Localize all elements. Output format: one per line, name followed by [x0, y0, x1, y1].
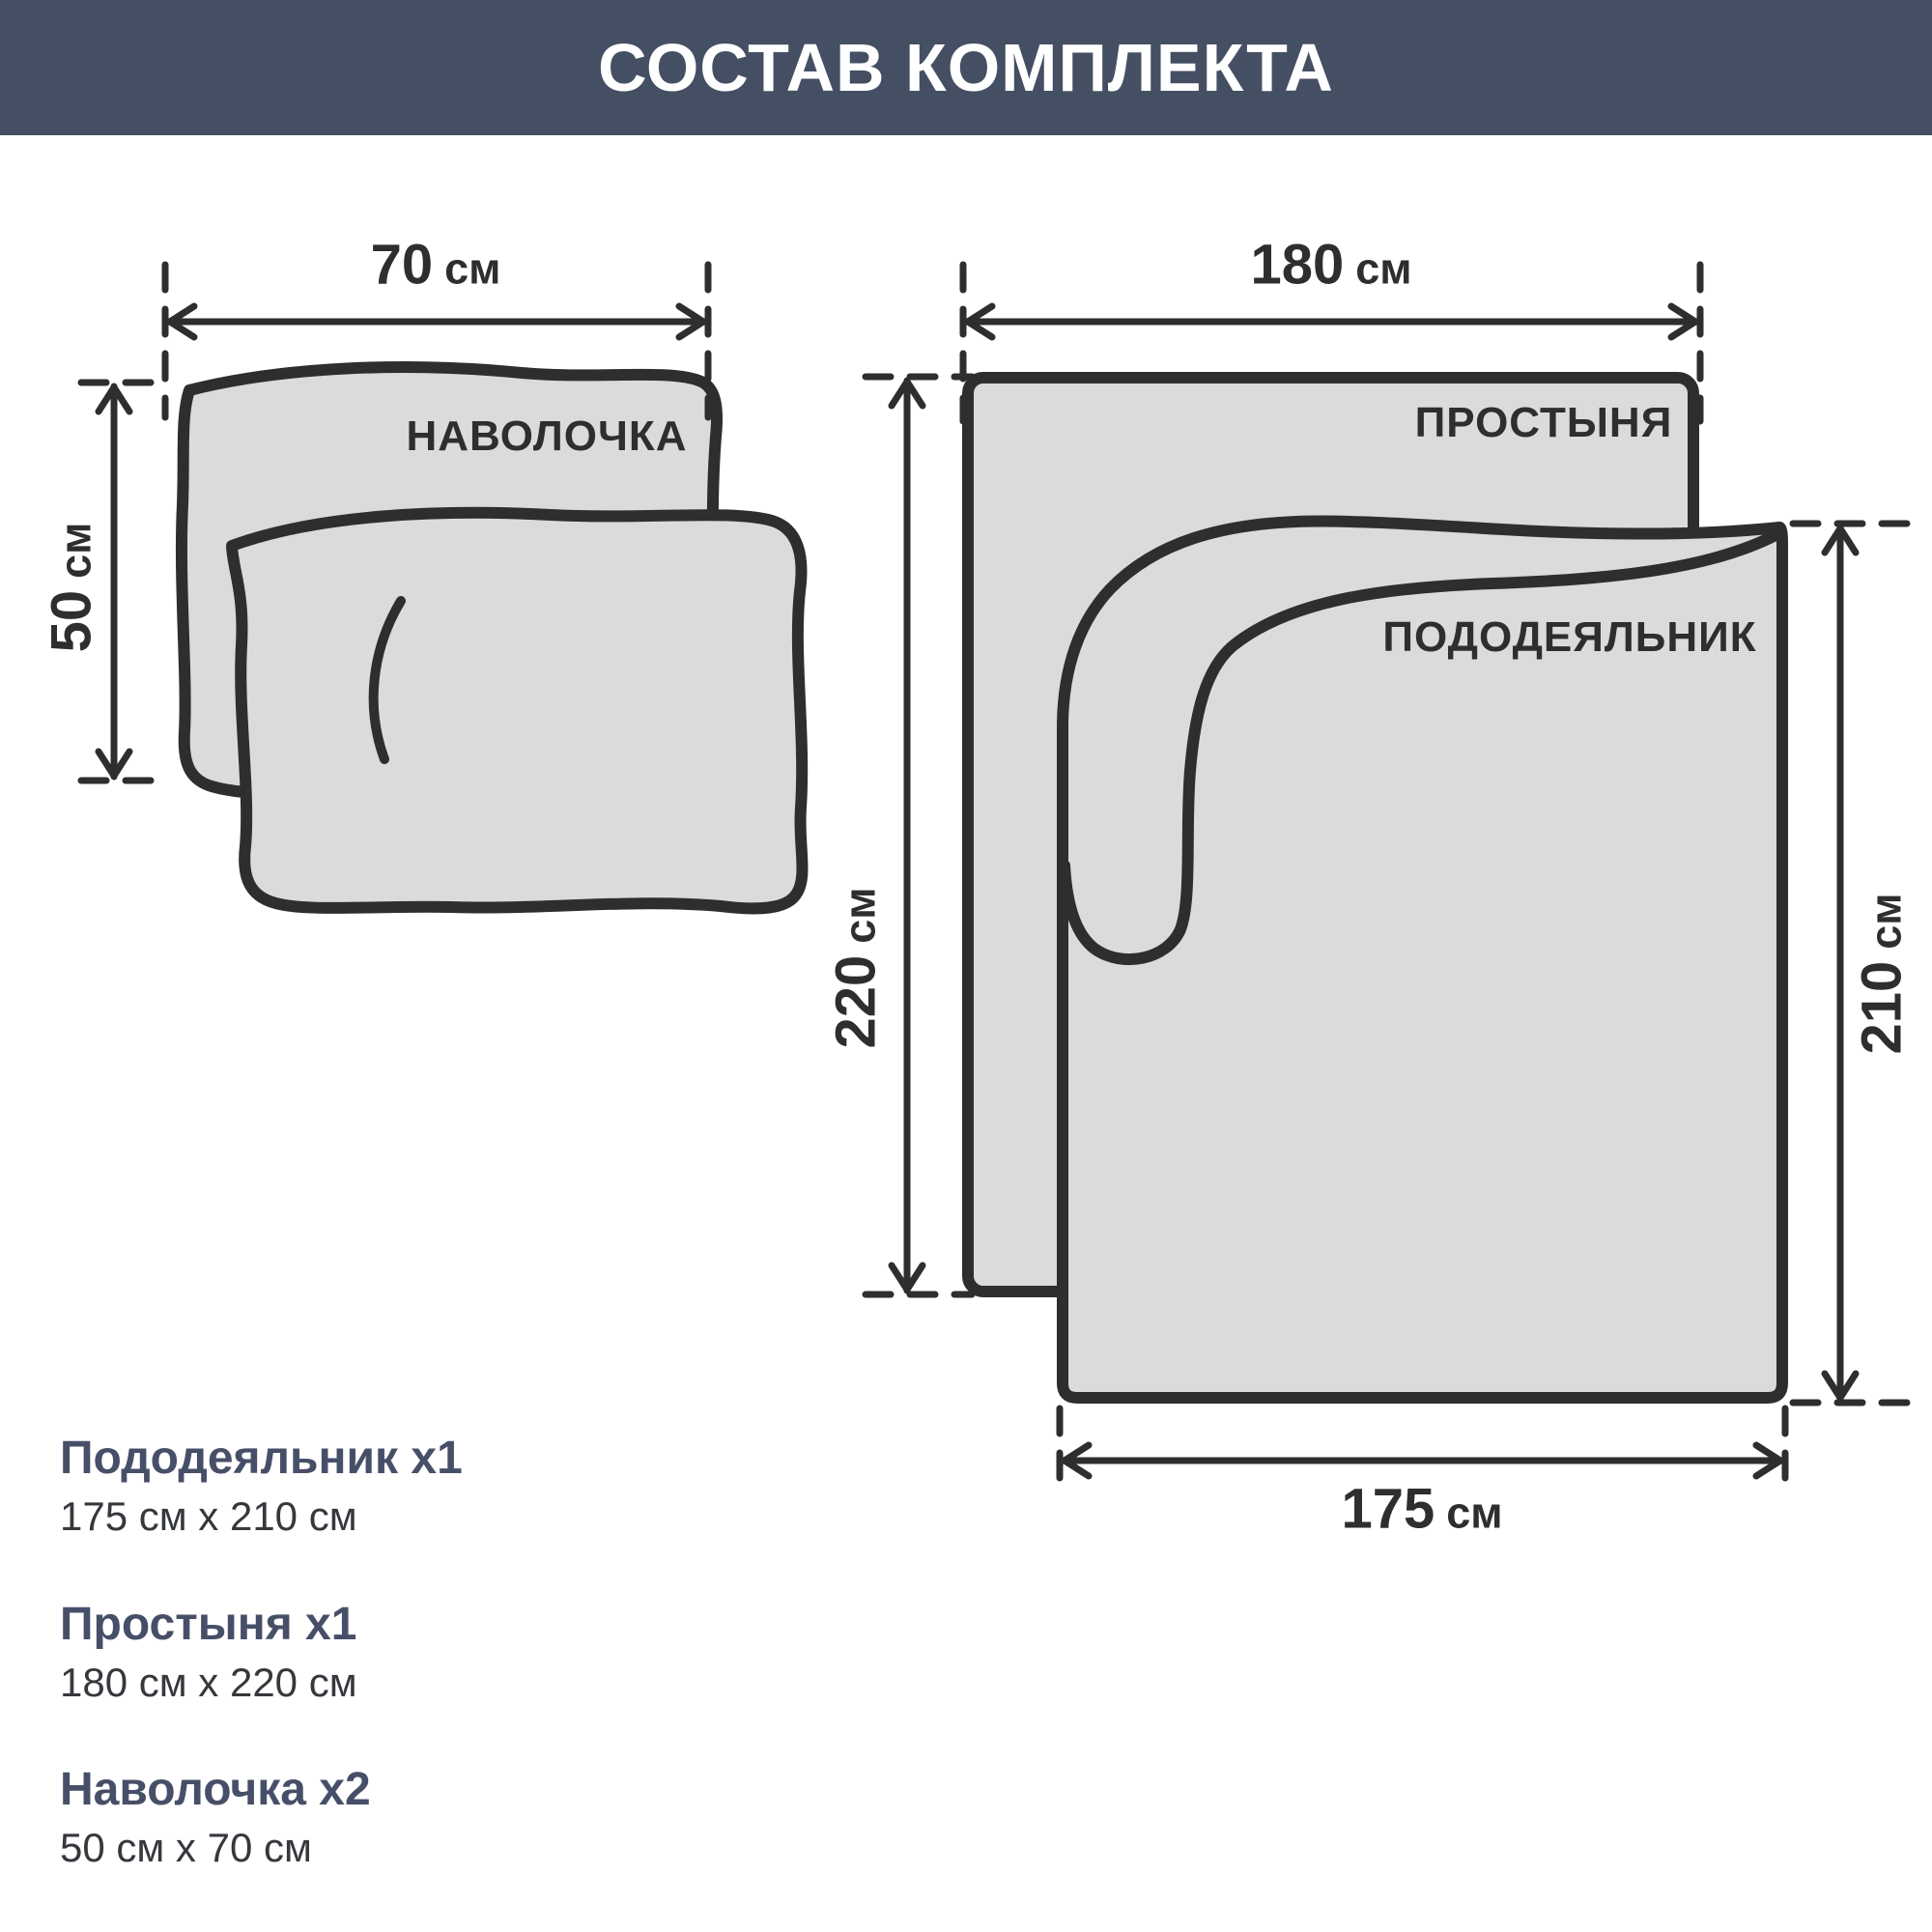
dim-label-sheet-height: 220см: [824, 887, 889, 1048]
dim-label-duvet-height: 210см: [1850, 893, 1915, 1054]
sheet-label: ПРОСТЫНЯ: [1415, 399, 1673, 447]
front-pillow-shape: [232, 513, 803, 909]
item-title: Пододеяльник х1: [60, 1432, 463, 1485]
dim-value: 175: [1341, 1477, 1435, 1542]
dim-label-sheet-width: 180см: [1250, 233, 1411, 298]
dim-unit: см: [444, 244, 500, 295]
dim-value: 220: [824, 955, 889, 1049]
item-title: Простыня х1: [60, 1598, 463, 1651]
dim-unit: см: [51, 523, 101, 579]
duvet-label: ПОДОДЕЯЛЬНИК: [1382, 613, 1756, 662]
dim-value: 50: [40, 590, 104, 653]
dim-label-pillow-height: 50см: [40, 523, 104, 653]
item-size: 50 см х 70 см: [60, 1824, 463, 1872]
item-title: Наволочка х2: [60, 1763, 463, 1816]
bedding-set-infographic: СОСТАВ КОМПЛЕКТА: [0, 0, 1932, 1932]
item-size: 180 см х 220 см: [60, 1659, 463, 1707]
dim-value: 180: [1250, 233, 1344, 298]
dim-unit: см: [1861, 893, 1912, 949]
dim-value: 210: [1850, 961, 1915, 1055]
dim-unit: см: [836, 887, 886, 943]
pillowcase-label: НАВОЛОЧКА: [406, 412, 687, 461]
list-item: Простыня х1 180 см х 220 см: [60, 1598, 463, 1708]
legend-list: Пододеяльник х1 175 см х 210 см Простыня…: [60, 1432, 463, 1929]
dim-unit: см: [1446, 1489, 1502, 1539]
list-item: Наволочка х2 50 см х 70 см: [60, 1763, 463, 1873]
list-item: Пододеяльник х1 175 см х 210 см: [60, 1432, 463, 1542]
dim-value: 70: [371, 233, 434, 298]
dim-label-duvet-width: 175см: [1341, 1477, 1502, 1542]
item-size: 175 см х 210 см: [60, 1492, 463, 1541]
dim-unit: см: [1355, 244, 1411, 295]
dimension-sheet-height: [866, 377, 972, 1294]
dim-label-pillow-width: 70см: [371, 233, 501, 298]
